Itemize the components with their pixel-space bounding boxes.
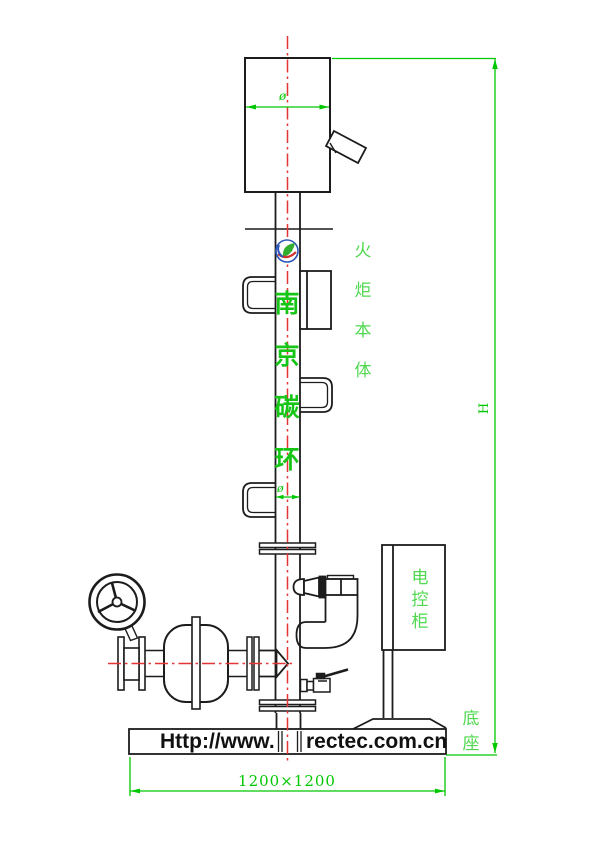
control-cabinet [353,545,446,729]
watermark-char: 京 [274,330,299,382]
watermark-char: 碳 [274,382,299,434]
website-url-prefix: Http://www. [160,730,275,754]
cabinet-char: 柜 [412,611,429,633]
flare-body-char: 炬 [355,271,372,311]
base-label: 底 座 [460,706,482,756]
flare-body-char: 体 [355,351,372,391]
base-char: 底 [463,706,480,731]
watermark-char: 南 [274,278,299,330]
flare-body-char: 本 [355,311,372,351]
handwheel [90,575,145,630]
watermark-company-name: 南 京 碳 环 [272,278,302,486]
cabinet-char: 控 [412,589,429,611]
flare-body-char: 火 [355,231,372,271]
watermark-char: 环 [274,434,299,486]
cad-drawing-page: 南 京 碳 环 火 炬 本 体 电 控 柜 底 座 H ø ø 1200×120… [0,0,600,849]
company-logo-icon [276,240,298,262]
control-cabinet-label: 电 控 柜 [409,567,431,633]
elbow-assembly [294,576,358,649]
flare-body-label: 火 炬 本 体 [352,231,374,391]
ball-valve [301,670,349,693]
height-dimension-label: H [477,403,492,414]
top-diameter-symbol: ø [279,89,286,103]
flare-tip [245,58,366,192]
pipe-side-box [300,271,331,329]
website-url-suffix: rectec.com.cn [306,730,447,754]
base-char: 座 [463,731,480,756]
base-dimension-label: 1200×1200 [237,772,337,790]
cabinet-char: 电 [412,567,429,589]
mid-diameter-symbol: ø [277,482,284,495]
